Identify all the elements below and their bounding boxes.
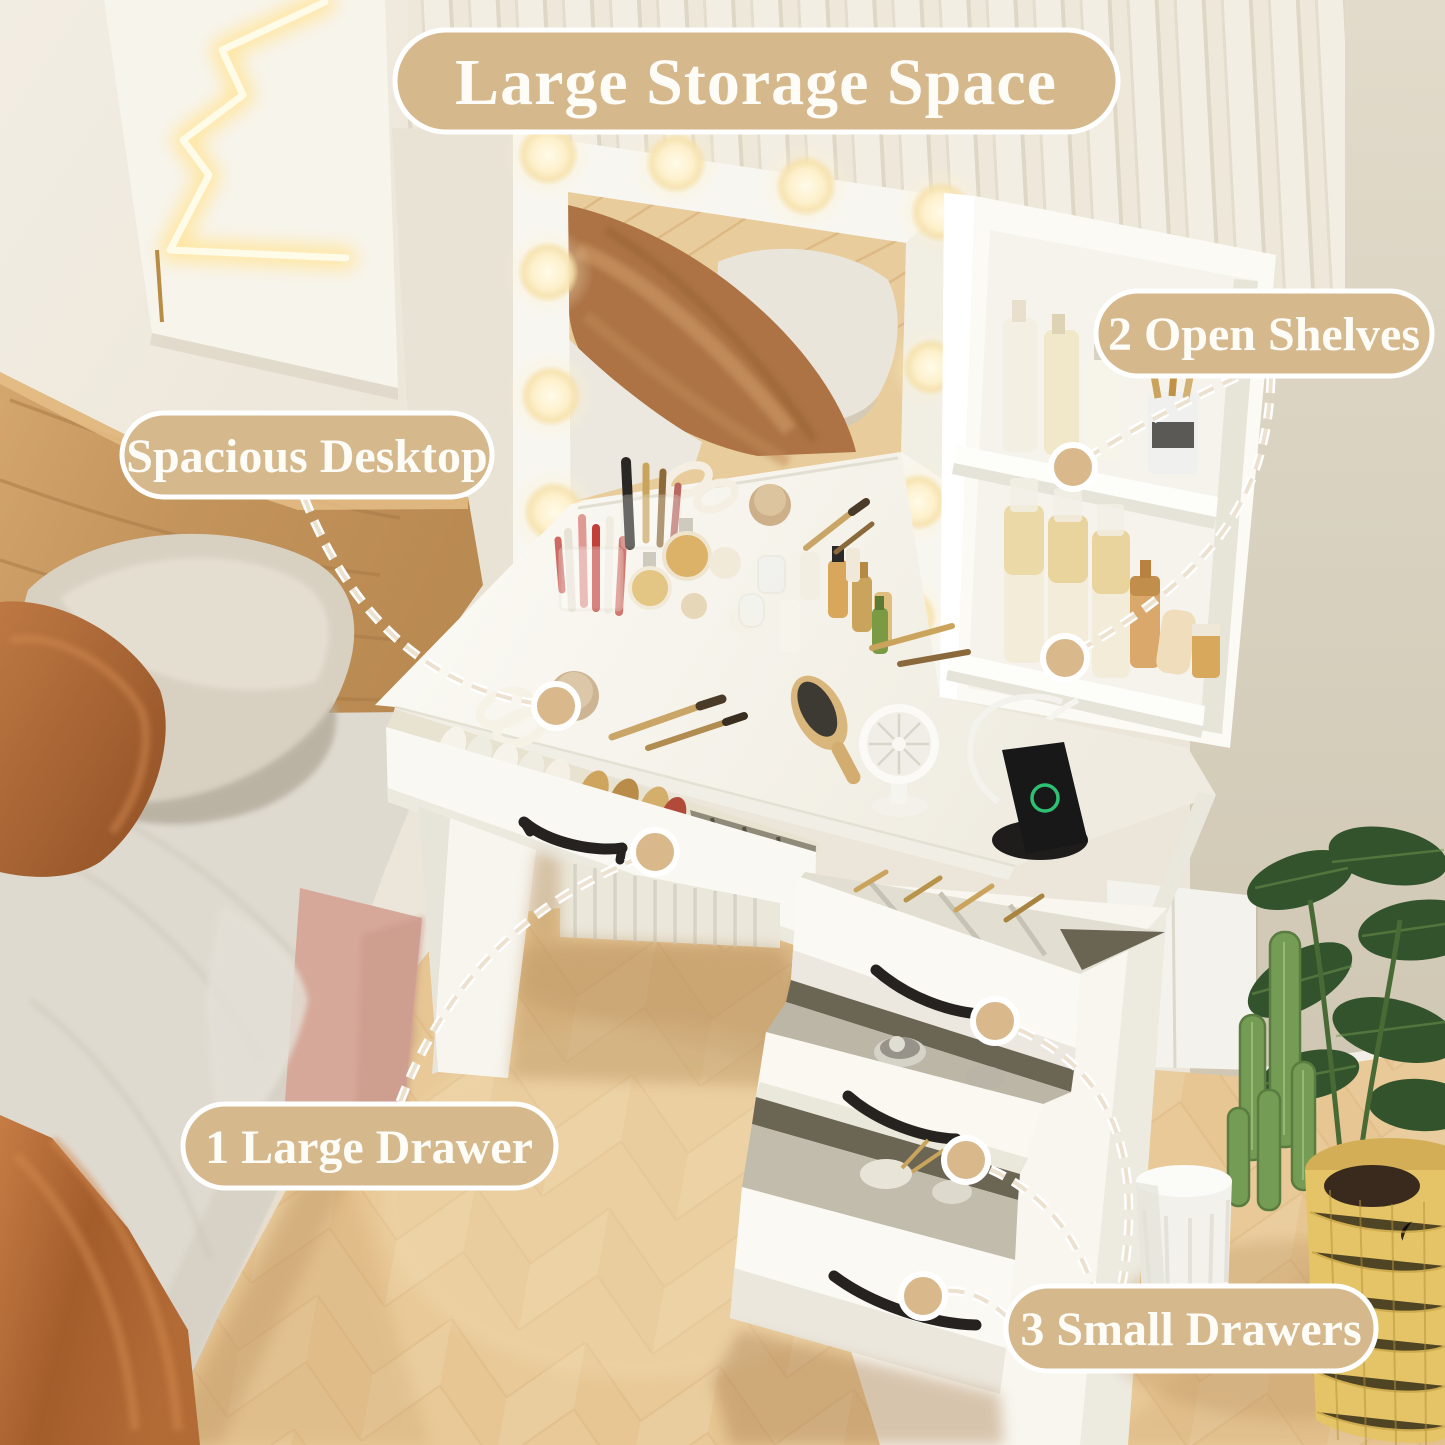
svg-text:3 Small Drawers: 3 Small Drawers bbox=[1020, 1303, 1361, 1356]
svg-text:1 Large Drawer: 1 Large Drawer bbox=[205, 1121, 533, 1174]
svg-text:Large Storage Space: Large Storage Space bbox=[455, 46, 1057, 119]
svg-text:2 Open Shelves: 2 Open Shelves bbox=[1108, 308, 1420, 361]
svg-text:Spacious Desktop: Spacious Desktop bbox=[126, 430, 487, 483]
